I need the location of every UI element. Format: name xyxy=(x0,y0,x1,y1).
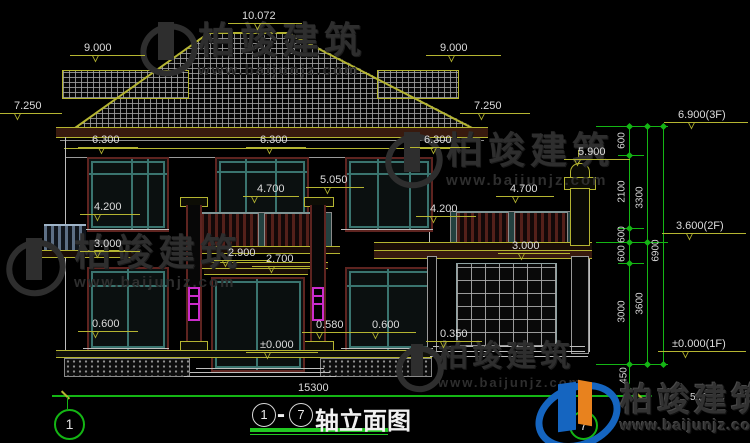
dim-text: 0.580 xyxy=(302,319,358,332)
chain-line-outer xyxy=(663,126,664,367)
company-logo-text: 柏竣建筑 www.baijunjz.com xyxy=(620,383,750,434)
chain-dim-3600: 3600 xyxy=(635,285,646,323)
axis-bubble-1: 1 xyxy=(54,409,85,440)
window-transom xyxy=(347,285,431,287)
dim-sill1-right: 0.600 ▽ xyxy=(358,319,416,333)
elevation-drawing-canvas: 1 7 600 2100 3300 600 600 3000 3600 6900… xyxy=(0,0,750,443)
dim-garage-apron: 0.350 ▽ xyxy=(426,328,482,342)
level-triangle-icon: ▽ xyxy=(448,54,455,63)
dim-rule xyxy=(426,341,482,342)
dim-rule xyxy=(426,55,501,56)
chain-dim-3300: 3300 xyxy=(635,179,646,217)
finial-shaft xyxy=(570,188,590,246)
dim-rule xyxy=(246,147,306,148)
level-triangle-icon: ▽ xyxy=(324,186,331,195)
railing-post xyxy=(325,212,332,248)
dim-capital: 5.050 ▽ xyxy=(306,174,364,188)
dim-text: 0.600 xyxy=(78,318,138,331)
window-mullion xyxy=(147,159,149,230)
entry-step-2 xyxy=(190,372,330,373)
sill-line-1f xyxy=(83,348,169,349)
chain-tick xyxy=(660,361,667,368)
level-triangle-icon: ▽ xyxy=(92,330,99,339)
dim-rule xyxy=(252,266,310,267)
dim-rule xyxy=(662,233,746,234)
dim-text: 10.072 xyxy=(228,10,302,23)
level-triangle-icon: ▽ xyxy=(430,215,437,224)
level-text: ±0.000(1F) xyxy=(658,338,746,351)
dim-rule xyxy=(664,122,748,123)
dim-rule xyxy=(302,332,358,333)
drawing-title: 轴立面图 xyxy=(315,401,411,436)
dim-slab-right: 3.000 ▽ xyxy=(498,240,570,254)
dim-text: 5.050 xyxy=(306,174,364,187)
dim-rule xyxy=(416,216,476,217)
dim-text: 4.200 xyxy=(80,201,140,214)
level-triangle-icon: ▽ xyxy=(440,340,447,349)
level-triangle-icon: ▽ xyxy=(98,146,105,155)
chain-dim-600c: 600 xyxy=(617,235,628,273)
window-sash xyxy=(91,161,165,228)
company-url: www.baijunjz.com xyxy=(620,418,750,434)
dim-rule xyxy=(306,187,364,188)
dim-text: 6.300 xyxy=(410,134,470,147)
level-triangle-icon: ▽ xyxy=(92,54,99,63)
level-3f: 6.900(3F) ▽ xyxy=(664,109,748,123)
dim-text: 7.250 xyxy=(0,100,62,113)
level-triangle-icon: ▽ xyxy=(512,195,519,204)
chain-tick xyxy=(644,361,651,368)
dim-rule xyxy=(78,147,138,148)
level-triangle-icon: ▽ xyxy=(251,195,258,204)
dim-rule xyxy=(658,351,746,352)
dim-rule xyxy=(228,23,302,24)
company-logo-building-blue xyxy=(558,382,576,433)
dim-ridge-left: 9.000 ▽ xyxy=(70,42,145,56)
entry-step-1 xyxy=(196,368,324,369)
level-triangle-icon: ▽ xyxy=(574,158,581,167)
dim-sill2-right: 4.200 ▽ xyxy=(416,203,476,217)
dim-text: 7.250 xyxy=(460,100,530,113)
dim-text: 6.300 xyxy=(78,134,138,147)
chain-line-mid xyxy=(647,126,648,367)
dim-6300-right: 6.300 ▽ xyxy=(410,134,470,148)
dim-finial: 5.900 ▽ xyxy=(564,146,630,160)
far-right-wall xyxy=(589,252,590,352)
plinth-band xyxy=(56,350,432,358)
dim-rule xyxy=(498,253,570,254)
dim-rule xyxy=(0,113,62,114)
dim-slab-left: 3.000 ▽ xyxy=(80,238,140,252)
dim-ridge-right: 9.000 ▽ xyxy=(426,42,501,56)
chain-dim-2100: 2100 xyxy=(617,173,628,211)
watermark-brand: 柏竣建筑 xyxy=(438,342,582,372)
dim-6300-left: 6.300 ▽ xyxy=(78,134,138,148)
dim-text: 0.350 xyxy=(426,328,482,341)
level-triangle-icon: ▽ xyxy=(264,351,271,360)
window-mullion xyxy=(377,159,379,230)
dim-text: 3.000 xyxy=(80,238,140,251)
dim-rule xyxy=(358,332,416,333)
level-2f: 3.600(2F) ▽ xyxy=(662,220,746,234)
dim-rule xyxy=(80,251,140,252)
watermark-url: www.baijunjz.com xyxy=(74,275,242,291)
chain-dim-3000: 3000 xyxy=(617,293,628,331)
level-triangle-icon: ▽ xyxy=(94,213,101,222)
title-dash: - xyxy=(277,401,285,429)
level-triangle-icon: ▽ xyxy=(94,250,101,259)
dim-balcony-slab-bottom: 2.700 ▽ xyxy=(252,253,310,267)
railing-post xyxy=(258,212,265,248)
level-triangle-icon: ▽ xyxy=(372,331,379,340)
dim-6300-center: 6.300 ▽ xyxy=(246,134,306,148)
dim-overall-width: 15300 xyxy=(298,382,329,394)
dim-sill1-left: 0.600 ▽ xyxy=(78,318,138,332)
dim-sill1-center: 0.580 ▽ xyxy=(302,319,358,333)
title-axis-bubble-7: 7 xyxy=(289,403,313,427)
downpipe-right xyxy=(312,287,324,321)
level-triangle-icon: ▽ xyxy=(518,252,525,261)
window-sash xyxy=(349,271,429,348)
title-axis-bubble-1: 1 xyxy=(252,403,276,427)
watermark-right: 柏竣建筑 www.baijunjz.com xyxy=(446,132,614,189)
company-logo-building-orange xyxy=(578,380,592,426)
dim-floor-zero: ±0.000 ▽ xyxy=(246,339,318,353)
downpipe-left xyxy=(188,287,200,321)
level-triangle-icon: ▽ xyxy=(222,259,229,268)
dim-sill2-left: 4.200 ▽ xyxy=(80,201,140,215)
entry-step-3 xyxy=(184,376,336,377)
dim-eave-right: 7.250 ▽ xyxy=(460,100,530,114)
dim-rule xyxy=(460,113,530,114)
window-transom xyxy=(89,173,167,175)
level-text: 3.600(2F) xyxy=(662,220,746,233)
chain-dim-6900: 6900 xyxy=(651,232,662,270)
window-1f-right xyxy=(345,267,433,352)
dim-rule xyxy=(246,352,318,353)
dim-rule xyxy=(80,214,140,215)
watermark-url: www.baijunjz.com xyxy=(198,63,366,79)
window-mullion xyxy=(131,159,133,230)
level-triangle-icon: ▽ xyxy=(430,146,437,155)
level-triangle-icon: ▽ xyxy=(688,121,695,130)
level-text: 6.900(3F) xyxy=(664,109,748,122)
dim-text: 2.700 xyxy=(252,253,310,266)
dim-text: 4.700 xyxy=(496,183,554,196)
window-mullion xyxy=(387,269,389,350)
sill-line-2f-left xyxy=(83,229,169,230)
level-triangle-icon: ▽ xyxy=(268,265,275,274)
chain-tick xyxy=(644,123,651,130)
dim-rail-right: 4.700 ▽ xyxy=(496,183,554,197)
level-triangle-icon: ▽ xyxy=(478,112,485,121)
level-triangle-icon: ▽ xyxy=(266,146,273,155)
level-triangle-icon: ▽ xyxy=(682,350,689,359)
dim-ridge: 10.072 ▽ xyxy=(228,10,302,24)
company-brand: 柏竣建筑 xyxy=(620,383,750,416)
sill-line-2f-right xyxy=(341,229,433,230)
axis-1-drop-line xyxy=(67,397,68,409)
dim-text: 9.000 xyxy=(426,42,501,55)
dim-text: 0.600 xyxy=(358,319,416,332)
dim-rule xyxy=(70,55,145,56)
window-transom xyxy=(217,171,307,173)
level-1f: ±0.000(1F) ▽ xyxy=(658,338,746,352)
dim-text: 6.300 xyxy=(246,134,306,147)
dim-rail-center: 4.700 ▽ xyxy=(243,183,299,197)
dim-text: 3.000 xyxy=(498,240,570,253)
chain-tick xyxy=(660,123,667,130)
watermark-brand: 柏竣建筑 xyxy=(198,22,366,60)
level-triangle-icon: ▽ xyxy=(14,112,21,121)
plinth-hatch-left xyxy=(64,358,190,377)
level-triangle-icon: ▽ xyxy=(254,22,261,31)
dim-rule xyxy=(410,147,470,148)
watermark-top: 柏竣建筑 www.baijunjz.com xyxy=(198,22,366,79)
level-triangle-icon: ▽ xyxy=(686,232,693,241)
dim-text: ±0.000 xyxy=(246,339,318,352)
dim-eave-left: 7.250 ▽ xyxy=(0,100,62,114)
dim-rule xyxy=(78,331,138,332)
dim-text: 4.200 xyxy=(416,203,476,216)
dim-rule xyxy=(496,196,554,197)
dim-text: 9.000 xyxy=(70,42,145,55)
